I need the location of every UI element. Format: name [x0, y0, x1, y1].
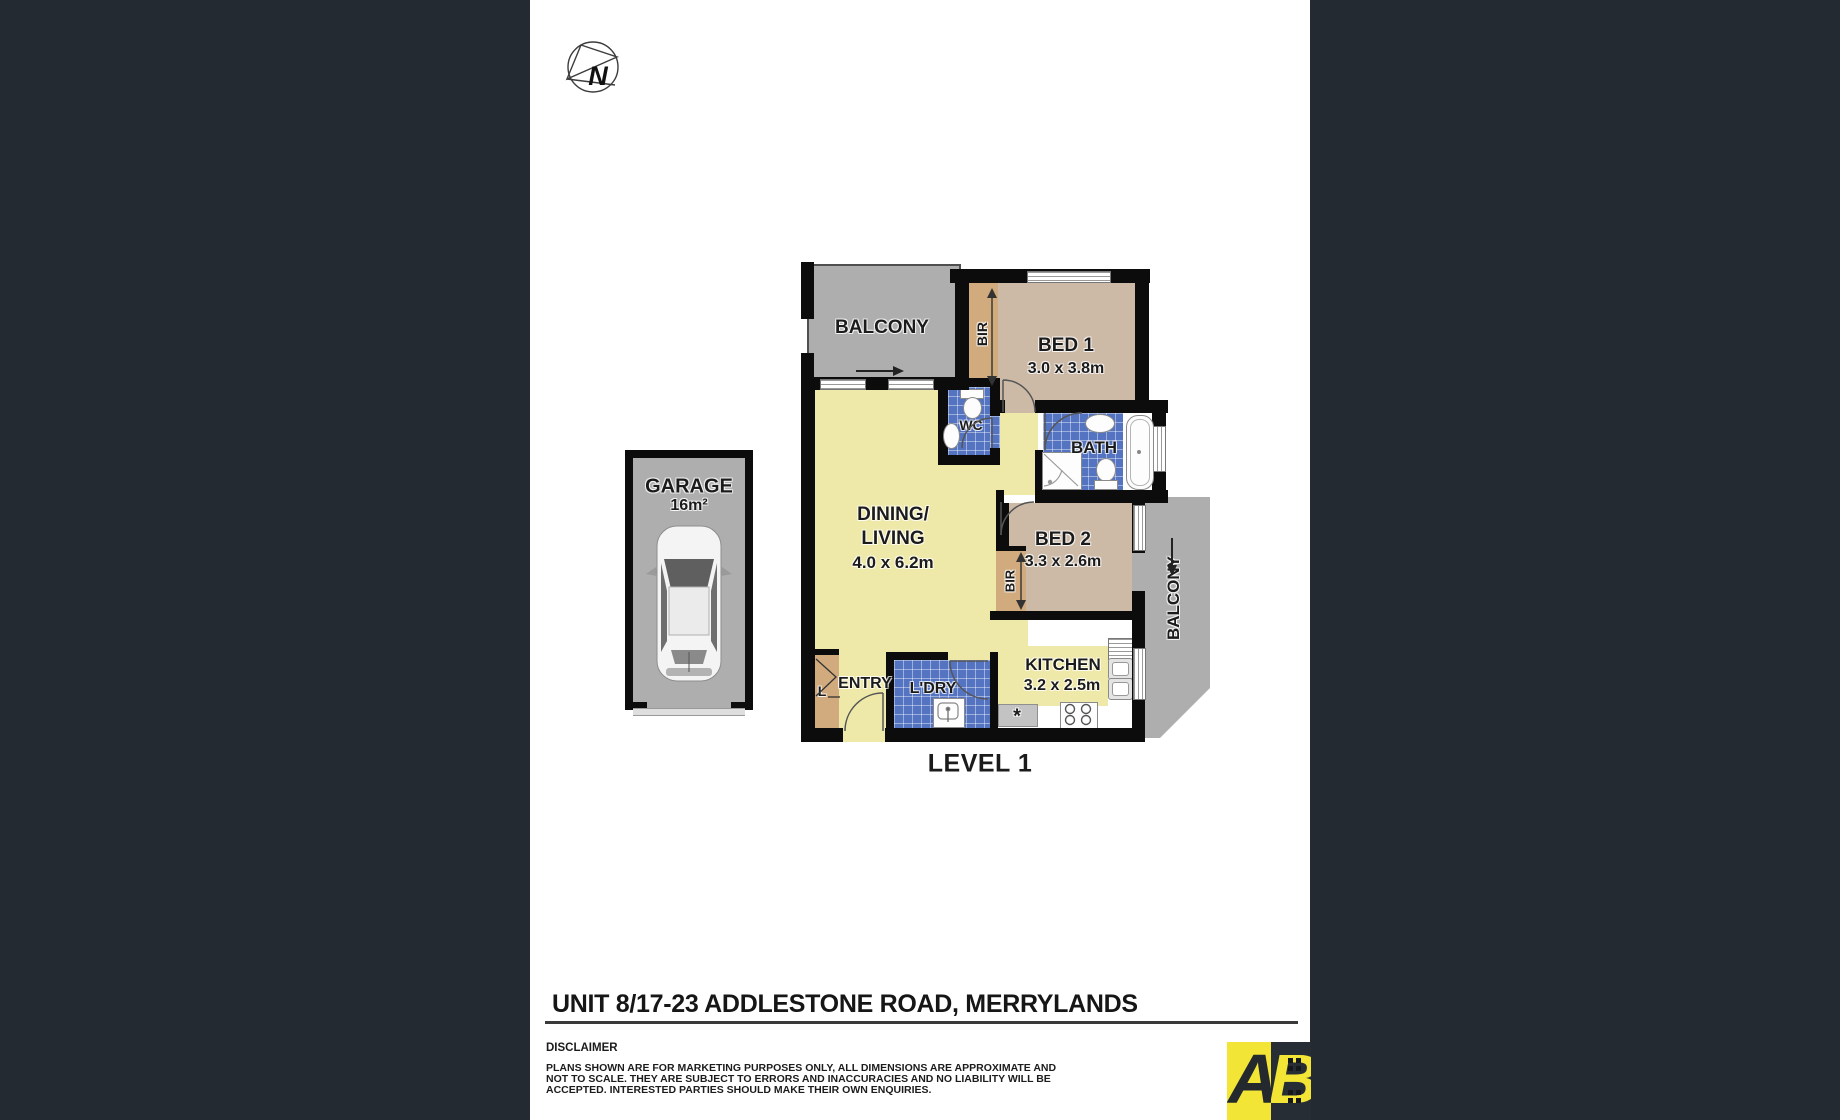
wc-toilet-bowl	[963, 397, 982, 419]
logo-block-right: B	[1271, 1042, 1311, 1120]
balcony-bir-wall	[955, 269, 969, 390]
logo-window-grid-bottom	[1288, 1090, 1301, 1103]
disclaimer-line-3: ACCEPTED. INTERESTED PARTIES SHOULD MAKE…	[546, 1085, 931, 1097]
garage-label: GARAGE	[645, 476, 733, 499]
wc-label: WC	[959, 417, 982, 433]
kitchen-sink-basin-1	[1112, 662, 1129, 676]
bed1-bir-label: BIR	[974, 322, 990, 346]
bed2-bir-label: BIR	[1003, 570, 1018, 592]
balcony-right-label: BALCONY	[1164, 556, 1184, 640]
laundry-washer	[933, 698, 965, 728]
entry-door-opening	[843, 728, 885, 742]
linen-top-stub	[813, 649, 839, 655]
logo-window-grid-top	[1288, 1058, 1301, 1071]
level-label: LEVEL 1	[928, 750, 1032, 779]
disclaimer-heading: DISCLAIMER	[546, 1042, 618, 1054]
laundry-label: L'DRY	[910, 680, 957, 698]
bed2-label: BED 2	[1035, 529, 1091, 551]
bath-right-wall-bottom	[1152, 470, 1166, 503]
kitchen-sink-basin-2	[1112, 682, 1129, 696]
balcony-top-label: BALCONY	[835, 317, 929, 339]
logo-letter-a: A	[1228, 1044, 1271, 1114]
page-title: UNIT 8/17-23 ADDLESTONE ROAD, MERRYLANDS	[552, 990, 1138, 1019]
bed2-window	[1133, 505, 1146, 551]
living-label-2: LIVING	[861, 528, 924, 550]
bath-tub-inner	[1130, 419, 1150, 486]
bed2-bir-top-wall	[996, 546, 1026, 551]
bath-window	[1152, 426, 1166, 472]
title-underline	[545, 1021, 1298, 1024]
bed2-left-wall	[996, 503, 1009, 550]
living-window-2	[888, 379, 934, 390]
kitchen-stove	[1060, 702, 1098, 729]
garage-driveway-line	[633, 708, 745, 716]
living-label-1: DINING/	[857, 504, 929, 526]
linen-label: L	[818, 683, 827, 699]
kitchen-label: KITCHEN	[1025, 655, 1101, 675]
floorplan-canvas: GARAGE 16m²	[0, 0, 1840, 1120]
dishwasher-marker: *	[1013, 706, 1021, 729]
logo-block-left: A	[1227, 1042, 1271, 1120]
bath-toilet-cistern	[1094, 480, 1118, 490]
living-dims: 4.0 x 6.2m	[852, 553, 933, 573]
kitchen-window	[1133, 648, 1146, 700]
entry-label: ENTRY	[838, 675, 892, 693]
logo-letter-b: B	[1271, 1044, 1311, 1114]
living-window-1	[820, 379, 866, 390]
bed2-dims: 3.3 x 2.6m	[1025, 553, 1102, 571]
bed2-door-stub	[996, 490, 1004, 503]
laundry-door-opening	[948, 652, 990, 660]
bed2-bottom-wall	[990, 611, 1145, 620]
garage-area-label: 16m²	[670, 497, 707, 515]
wall-bed1-door-stub	[998, 400, 1005, 413]
bed1-label: BED 1	[1038, 335, 1094, 357]
balcony-wall-stub-top	[801, 262, 814, 319]
kitchen-dims: 3.2 x 2.5m	[1024, 677, 1101, 695]
bed1-top-window	[1027, 271, 1111, 283]
bed1-dims: 3.0 x 3.8m	[1028, 360, 1105, 378]
bed2-top-wall	[1035, 490, 1145, 503]
hall-floor	[998, 405, 1038, 495]
bath-basin	[1085, 414, 1115, 433]
wc-basin	[943, 423, 960, 449]
bath-right-wall-top	[1152, 403, 1166, 426]
left-wall	[801, 377, 815, 742]
bath-toilet-bowl	[1096, 458, 1116, 482]
bed1-right-wall	[1135, 269, 1149, 413]
wc-door-opening	[990, 416, 1000, 448]
kitchen-drainer	[1108, 638, 1134, 660]
bath-label: BATH	[1071, 438, 1117, 458]
bed2-balcony-opening	[1132, 553, 1145, 591]
